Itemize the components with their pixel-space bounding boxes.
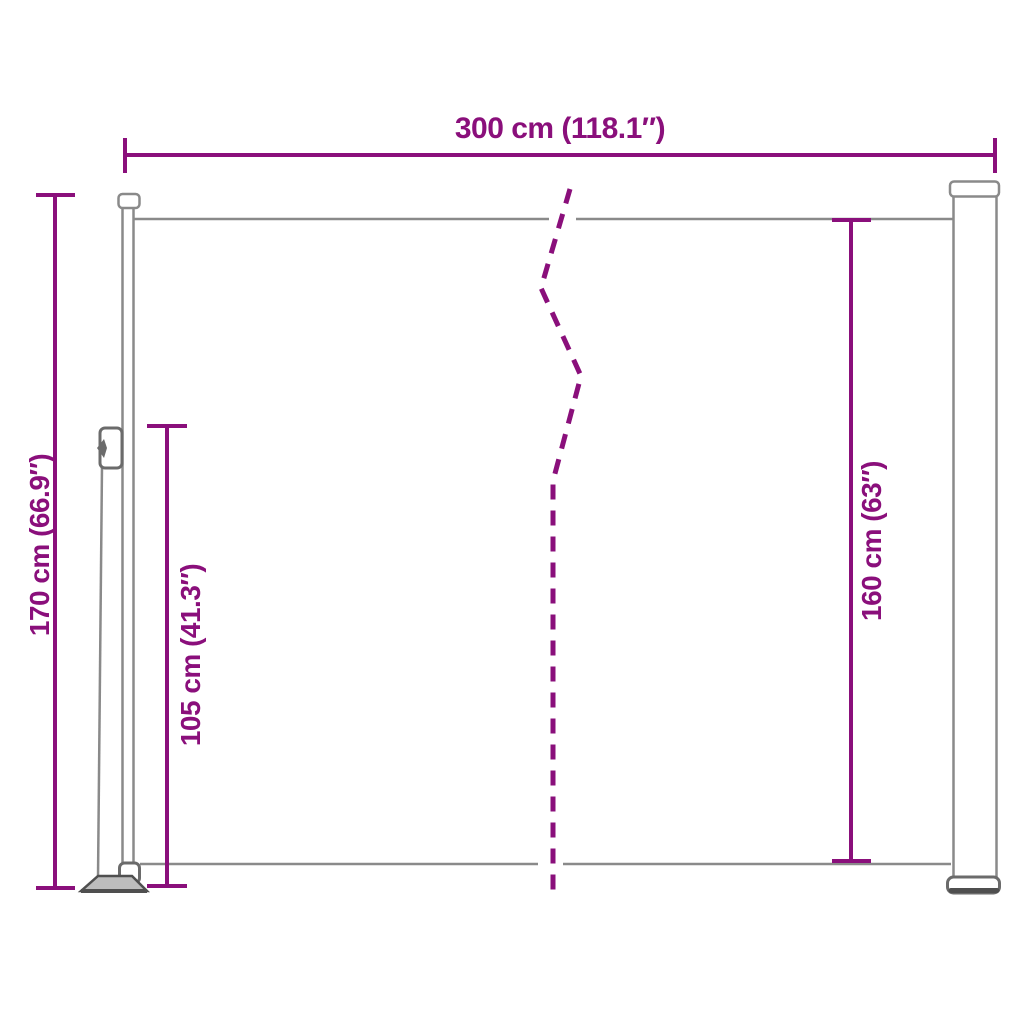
total-height-dimension-label: 170 cm (66.9″) — [24, 454, 56, 636]
left-post-cap — [119, 194, 140, 208]
fabric-height-dimension-cap-top — [832, 218, 871, 222]
width-dimension-tick-right — [993, 138, 997, 173]
cassette-cap — [950, 182, 999, 197]
inner-height-dimension-label: 105 cm (41.3″) — [175, 564, 207, 746]
inner-height-dimension-line — [165, 426, 169, 888]
fabric-height-dimension-label: 160 cm (63″) — [856, 461, 888, 621]
total-height-dimension-cap-top — [36, 193, 75, 197]
fabric-break-line — [541, 189, 581, 899]
cassette-post — [954, 194, 997, 880]
left-post — [123, 206, 134, 880]
fabric-height-dimension-line — [849, 220, 853, 862]
width-dimension-line — [125, 153, 995, 157]
fabric-height-dimension-cap-bottom — [832, 859, 871, 863]
left-support-rod — [98, 466, 102, 878]
inner-height-dimension-cap-top — [147, 424, 187, 428]
total-height-dimension-cap-bottom — [36, 886, 75, 890]
product-dimension-diagram: 300 cm (118.1″) 170 cm (66.9″) 105 cm (4… — [0, 0, 1024, 1024]
inner-height-dimension-cap-bottom — [147, 884, 187, 888]
width-dimension-tick-left — [123, 138, 127, 173]
width-dimension-label: 300 cm (118.1″) — [455, 112, 665, 146]
